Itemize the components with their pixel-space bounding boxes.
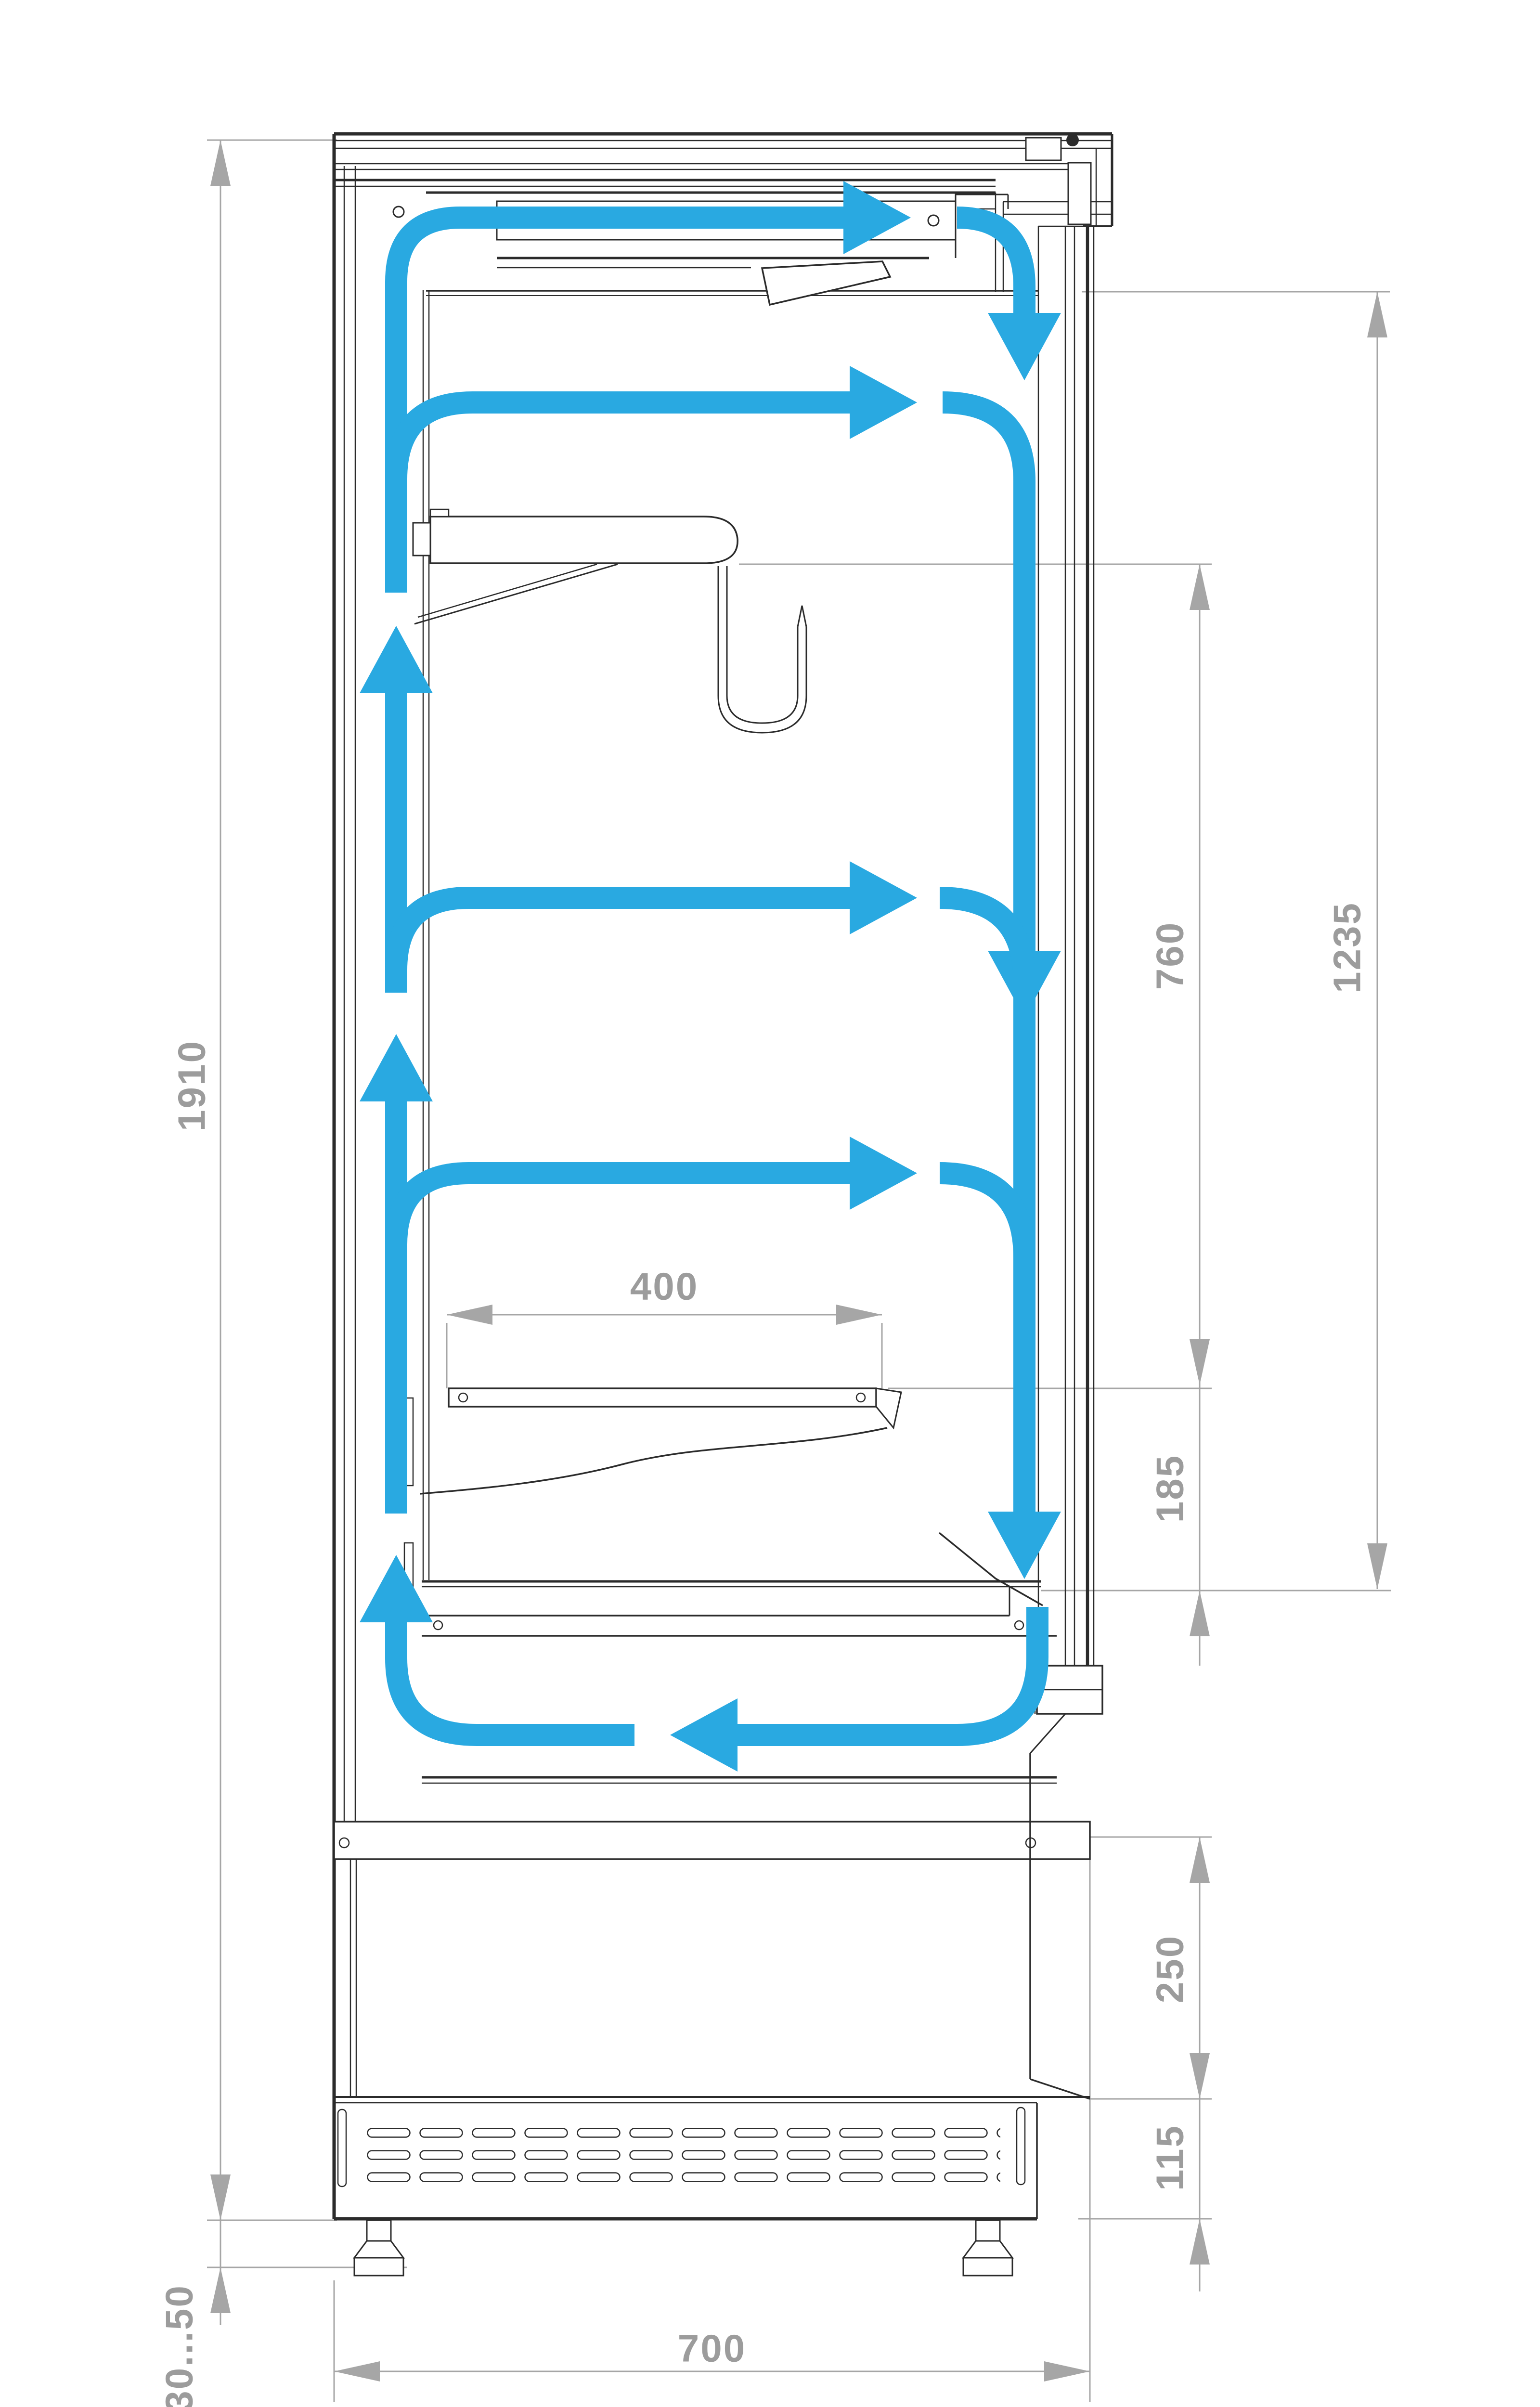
louver-panel (334, 2103, 1037, 2219)
cabinet-structure (334, 134, 1112, 2276)
airflow-branch-level-1 (396, 402, 850, 479)
lower-shelf (420, 1388, 901, 1494)
arrow-250-top (1190, 1837, 1210, 1883)
airflow-branch-level-3 (396, 1173, 850, 1244)
label-machine-compartment: 250 (1149, 1935, 1191, 2003)
return-tray (422, 1533, 1057, 1714)
airflow-arrows (360, 181, 1061, 1772)
glass-door (1038, 226, 1094, 1666)
shelf-support-curve (420, 1428, 887, 1494)
screw-icon (856, 1393, 865, 1402)
arrow-700-right (1044, 2361, 1090, 2381)
label-vent-grille: 115 (1149, 2124, 1191, 2191)
label-opening-height: 760 (1149, 921, 1191, 990)
shelf-front-lip (876, 1388, 901, 1428)
label-overall-height: 1910 (170, 1040, 213, 1131)
arrow-185-bottom (1190, 1591, 1210, 1636)
shelf-bracket (413, 523, 430, 556)
hinge-bracket (1068, 163, 1091, 224)
airflow-branch-level-2 (396, 898, 850, 970)
hinge-plate (1026, 138, 1061, 160)
shelf-strut (414, 564, 618, 624)
airflow-down-arrow-icon (988, 1512, 1061, 1579)
louver-end-slot (338, 2109, 346, 2187)
screw-icon (928, 215, 939, 226)
base-deck (334, 1777, 1090, 1859)
airflow-return-to-duct (396, 1621, 634, 1735)
airflow-bottom-return (738, 1607, 1037, 1735)
screw-icon (1015, 1621, 1023, 1630)
arrow-1235-bottom (1367, 1543, 1387, 1589)
airflow-down-arrow-icon (988, 313, 1061, 380)
right-foot (963, 2220, 1012, 2276)
airflow-right-arrow-icon (850, 366, 917, 439)
airflow-right-arrow-icon (850, 861, 917, 934)
arrow-760-bottom (1190, 1339, 1210, 1385)
arrow-1910-top (210, 140, 231, 186)
arrow-400-left (447, 1305, 492, 1325)
screw-icon (339, 1838, 349, 1848)
airflow-up-arrow-icon (360, 1034, 433, 1101)
arrow-foot-bottom (210, 2267, 231, 2313)
arrow-115-bottom (1190, 2219, 1210, 2265)
airflow-up-arrow-icon (360, 1555, 433, 1622)
airflow-right-arrow-icon (850, 1137, 917, 1210)
airflow-left-arrow-icon (670, 1698, 738, 1772)
label-foot-height: 30...50 (158, 2284, 201, 2407)
airflow-down-2 (943, 402, 1024, 951)
airflow-down-1 (957, 218, 1024, 313)
screw-icon (434, 1621, 442, 1630)
hinge-pin-icon (1066, 134, 1079, 146)
screw-icon (459, 1393, 467, 1402)
air-deflector-plate (762, 261, 890, 305)
airflow-merge-curve (940, 1173, 1024, 1300)
arrow-250-bottom (1190, 2053, 1210, 2099)
label-shelf-depth: 400 (630, 1265, 699, 1308)
top-shelf (413, 509, 738, 624)
arrow-1910-bottom (210, 2174, 231, 2220)
label-lower-opening: 185 (1149, 1454, 1191, 1523)
display-hook (718, 566, 806, 733)
arrow-700-left (334, 2361, 380, 2381)
airflow-up-arrow-icon (360, 626, 433, 693)
back-wall (334, 134, 355, 2219)
arrow-1235-top (1367, 292, 1387, 337)
left-foot (354, 2220, 403, 2276)
arrow-400-right (836, 1305, 882, 1325)
louver-end-slot (1017, 2108, 1025, 2185)
dimension-annotations: 1910 30...50 700 400 760 1235 185 250 11… (158, 140, 1392, 2407)
label-overall-depth: 700 (678, 2327, 746, 2370)
screw-icon (393, 207, 404, 217)
louver-slots (367, 2128, 1000, 2182)
label-interior-height: 1235 (1326, 902, 1369, 993)
arrow-760-top (1190, 564, 1210, 610)
cabinet-airflow-diagram: 1910 30...50 700 400 760 1235 185 250 11… (0, 0, 1540, 2407)
